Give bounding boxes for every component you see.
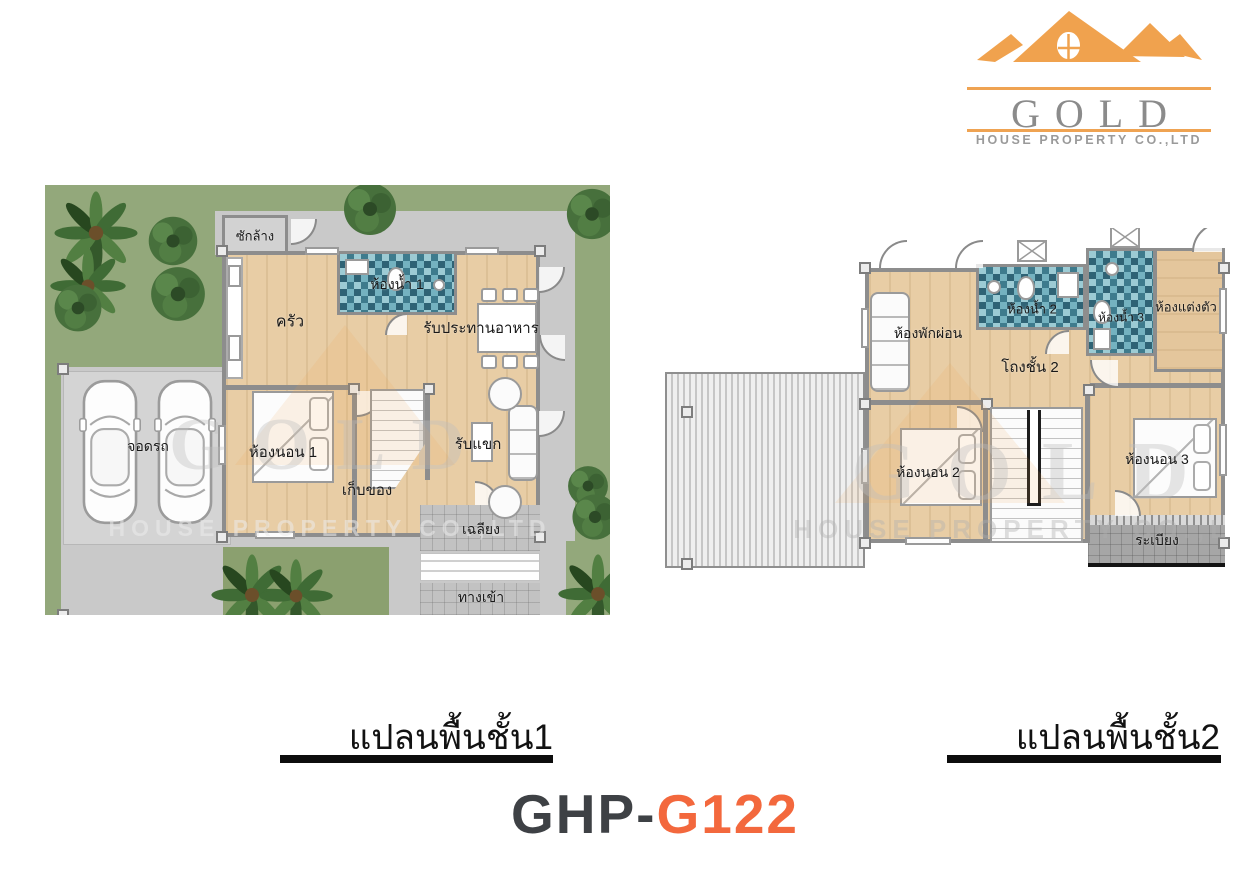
room-label-bathroom3: ห้องน้ำ 3 (1098, 309, 1144, 328)
window (1219, 288, 1227, 334)
wall-joint (859, 262, 871, 274)
company-logo: GOLD HOUSE PROPERTY CO.,LTD (963, 6, 1215, 154)
bathroom2-toilet (1017, 276, 1035, 300)
room-label-bathroom2: ห้องน้ำ 2 (1007, 299, 1057, 320)
dining-chair (481, 355, 497, 369)
logo-rule-bottom (967, 129, 1211, 132)
wall-joint (1218, 262, 1230, 274)
dining-chair (481, 288, 497, 302)
tree-icon (51, 281, 105, 335)
bathroom1-drain (433, 279, 445, 291)
wall-joint (681, 558, 693, 570)
palm-tree-icon (258, 558, 334, 615)
armchair (488, 377, 522, 411)
roof-mountains-icon (969, 8, 1209, 84)
door-arc (879, 240, 907, 268)
wall-joint (859, 398, 871, 410)
room-label-living: รับแขก (455, 432, 502, 456)
room-label-dressing: ห้องแต่งตัว (1155, 297, 1217, 318)
room-label-bedroom3: ห้องนอน 3 (1125, 449, 1189, 471)
floor-plan-2: GOLD HOUSE PROPERTY CO.,LTD ห้องพักผ่อน … (665, 228, 1230, 618)
room-label-dining: รับประทานอาหาร (423, 316, 539, 340)
model-prefix: GHP- (511, 783, 657, 845)
dining-chair (523, 355, 539, 369)
bathroom2-cabinet (1057, 272, 1079, 298)
room-label-bedroom2: ห้องนอน 2 (896, 462, 960, 484)
room-label-bathroom1: ห้องน้ำ 1 (370, 274, 424, 296)
window (1219, 424, 1227, 476)
window (465, 247, 499, 255)
tree-icon (340, 185, 400, 239)
room-label-family: ห้องพักผ่อน (894, 323, 962, 345)
room-label-laundry: ซักล้าง (236, 226, 274, 247)
room-label-porch: เฉลียง (462, 519, 500, 541)
tree-icon (147, 263, 209, 325)
bathroom1-sink (345, 259, 369, 275)
tree-icon (563, 185, 610, 243)
sofa-living (508, 405, 538, 481)
floor-plan-1: GOLD HOUSE PROPERTY CO.,LTD ซักล้าง ห้อง… (45, 185, 610, 615)
model-number: G122 (656, 783, 799, 845)
kitchen-sink (228, 265, 241, 287)
room-label-storage: เก็บของ (342, 478, 392, 502)
model-code: GHP-G122 (450, 782, 860, 846)
bathroom3-cabinet (1093, 328, 1111, 350)
wall-joint (57, 363, 69, 375)
room-label-entrance: ทางเข้า (458, 587, 504, 609)
room-label-hall: โถงชั้น 2 (1001, 355, 1058, 379)
wall-joint (534, 245, 546, 257)
window (861, 308, 869, 348)
window (305, 247, 339, 255)
tree-icon (569, 491, 610, 543)
plan1-caption-underline (280, 755, 553, 763)
dining-chair (502, 288, 518, 302)
watermark-title: GOLD (169, 403, 491, 488)
tree-icon (145, 213, 201, 269)
door-arc (955, 240, 983, 268)
logo-subtitle: HOUSE PROPERTY CO.,LTD (963, 133, 1215, 147)
bathroom3-shower (1105, 262, 1119, 276)
dining-chair (502, 355, 518, 369)
balcony-edge (1088, 563, 1225, 567)
wall-joint (216, 245, 228, 257)
room-label-bedroom1: ห้องนอน 1 (249, 440, 317, 464)
room-label-balcony: ระเบียง (1135, 530, 1179, 552)
room-label-carport: จอดรถ (127, 436, 169, 458)
dining-chair (523, 288, 539, 302)
kitchen-stove (228, 335, 241, 361)
vent-icon (1017, 240, 1047, 262)
wall-joint (681, 406, 693, 418)
plan-sheet: GOLD HOUSE PROPERTY CO.,LTD (0, 0, 1252, 873)
plan2-caption-underline (947, 755, 1221, 763)
wall-joint (1083, 384, 1095, 396)
vent-icon (1110, 228, 1140, 248)
armchair (488, 485, 522, 519)
palm-tree-icon (557, 553, 610, 615)
bathroom2-sink (987, 280, 1001, 294)
door-arc (1192, 228, 1222, 252)
entry-steps (420, 553, 540, 581)
room-label-kitchen: ครัว (276, 310, 304, 335)
wall-joint (57, 609, 69, 615)
